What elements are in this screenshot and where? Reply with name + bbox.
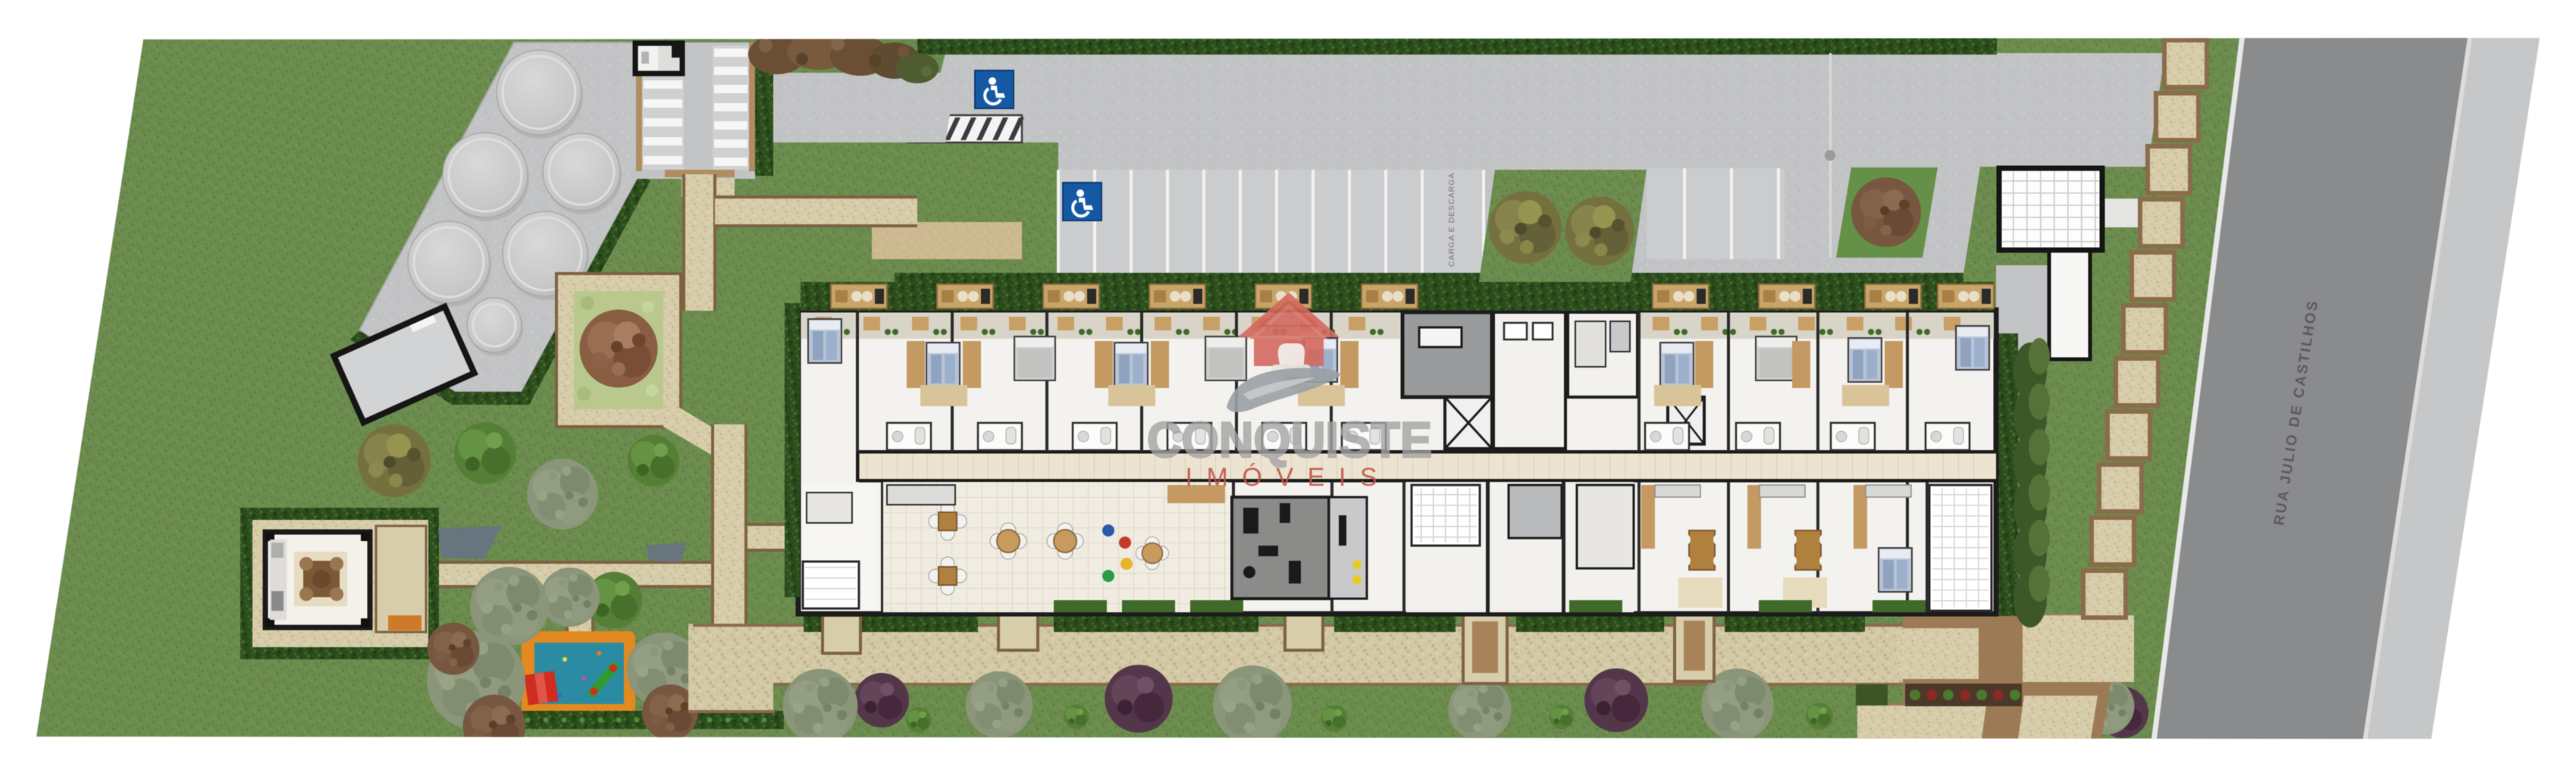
svg-text:CARGA E DESCARGA: CARGA E DESCARGA [1447, 172, 1456, 267]
svg-text:CONQUISTE: CONQUISTE [1147, 411, 1432, 468]
